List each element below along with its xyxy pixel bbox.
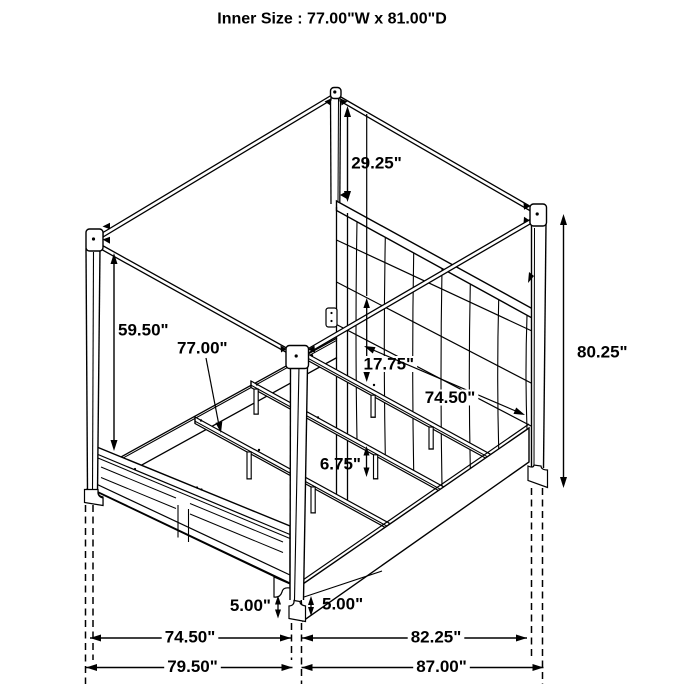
svg-text:5.00": 5.00"	[322, 595, 363, 614]
svg-text:74.50": 74.50"	[425, 388, 476, 407]
svg-text:29.25": 29.25"	[351, 154, 402, 173]
svg-text:Inner Size : 77.00"W x 81.00"D: Inner Size : 77.00"W x 81.00"D	[217, 11, 447, 28]
svg-text:80.25": 80.25"	[577, 343, 628, 362]
svg-text:5.00": 5.00"	[230, 596, 271, 615]
svg-text:87.00": 87.00"	[416, 657, 467, 676]
svg-text:77.00": 77.00"	[177, 339, 228, 358]
svg-text:74.50": 74.50"	[165, 628, 216, 647]
svg-text:79.50": 79.50"	[167, 657, 218, 676]
svg-text:82.25": 82.25"	[411, 628, 462, 647]
svg-text:59.50": 59.50"	[118, 321, 169, 340]
svg-text:6.75": 6.75"	[320, 455, 361, 474]
